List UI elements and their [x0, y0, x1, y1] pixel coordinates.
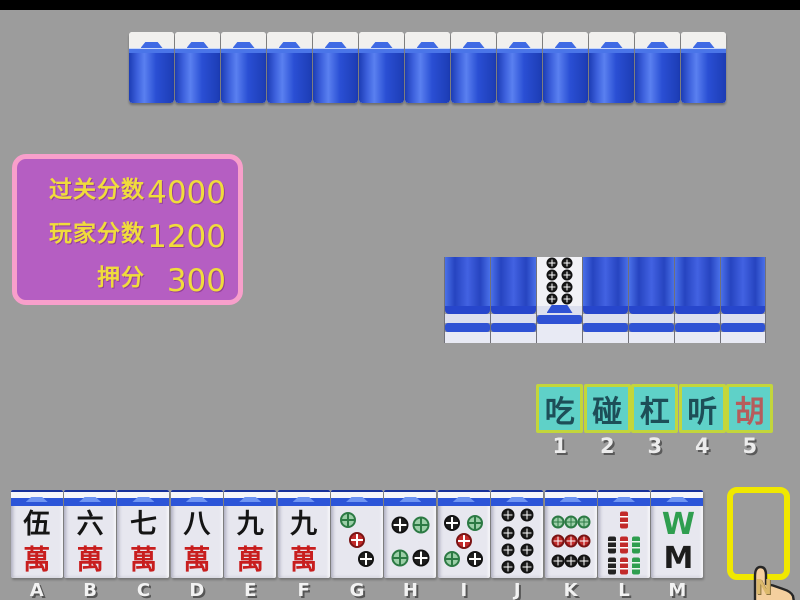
tile-back-body [497, 53, 542, 103]
action-cell-gang: 杠3 [631, 384, 679, 457]
tile-top-face [405, 32, 450, 48]
tile-stripe [537, 306, 582, 315]
circle-dot-black [392, 516, 409, 533]
action-button-bar: 吃1碰2杠3听4胡5 [536, 384, 774, 457]
circle-dot-black [501, 509, 514, 522]
meld-tile-back [628, 257, 674, 343]
hand-cell: I [437, 490, 490, 600]
opponent-tile-back [451, 32, 496, 103]
tile-cap [331, 490, 383, 506]
hand-tile-E[interactable]: 九萬 [224, 490, 276, 578]
hand-cell: 七萬C [117, 490, 170, 600]
tile-side-body [445, 257, 490, 306]
circle-dot-green [392, 549, 409, 566]
opponent-tile-back [359, 32, 404, 103]
circle-dot-black [412, 549, 429, 566]
opponent-tile-back [313, 32, 358, 103]
tile-stripe [583, 323, 628, 332]
circle-dot-black [501, 543, 514, 556]
tile-back-body [543, 53, 588, 103]
action-cell-hu: 胡5 [726, 384, 774, 457]
tile-stripe [721, 306, 765, 314]
action-button-gang[interactable]: 杠 [631, 384, 678, 433]
tile-face [438, 506, 490, 578]
tile-stripe [583, 306, 628, 314]
tile-top-face [221, 32, 266, 48]
player-score-label: 玩家分数 [17, 211, 145, 248]
score-row-player-score: 玩家分数 1200 [17, 211, 238, 255]
tile-stripe [445, 306, 490, 314]
hand-cell: 伍萬A [10, 490, 63, 600]
hand-tile-I[interactable] [438, 490, 490, 578]
tile-side-body [721, 257, 765, 306]
tile-side-body [583, 257, 628, 306]
hand-tile-letter: K [564, 582, 578, 600]
hand-tile-D[interactable]: 八萬 [171, 490, 223, 578]
player-hand-row: 伍萬A六萬B七萬C八萬D九萬E九萬FGHIJKLWMM [10, 490, 704, 600]
circle-dot-black [551, 554, 564, 567]
circle-dot-black [467, 551, 483, 567]
circle-dot-green [444, 551, 460, 567]
tile-back-body [267, 53, 312, 103]
tile-wan-char: 萬 [117, 547, 169, 574]
tile-stripe [583, 332, 628, 343]
player-score-value: 1200 [145, 211, 238, 253]
tile-back-body [681, 53, 726, 103]
tile-cap [651, 490, 703, 506]
tile-cap [384, 490, 436, 506]
tile-stripe [445, 332, 490, 343]
hand-cell: 六萬B [63, 490, 116, 600]
tile-stripe [445, 323, 490, 332]
tile-wan-char: 萬 [64, 547, 116, 574]
circle-dot-green [564, 515, 577, 528]
tile-cap [278, 490, 330, 506]
score-row-pass-score: 过关分数 4000 [17, 167, 238, 211]
tile-wan-char: 萬 [171, 547, 223, 574]
tile-face: 九萬 [278, 506, 330, 578]
circle-dot-black [520, 561, 533, 574]
tile-top-face [543, 32, 588, 48]
tile-back-body [405, 53, 450, 103]
hand-cursor-icon [744, 564, 800, 600]
opponent-tile-back [175, 32, 220, 103]
tile-back-body [313, 53, 358, 103]
tile-stripe [491, 332, 536, 343]
action-cell-peng: 碰2 [584, 384, 632, 457]
tile-stripe [675, 323, 720, 332]
tile-top-face [451, 32, 496, 48]
tile-cap [491, 490, 543, 506]
circle-dot-black [520, 509, 533, 522]
tile-stripe [629, 332, 674, 343]
tile-back-body [451, 53, 496, 103]
action-hotkey-gang: 3 [647, 436, 662, 457]
circle-dot-red [349, 532, 365, 548]
circle-dot-black [444, 515, 460, 531]
hand-tile-letter: L [618, 582, 629, 600]
opponent-tile-back [267, 32, 312, 103]
hand-tile-C[interactable]: 七萬 [117, 490, 169, 578]
tile-cap [545, 490, 597, 506]
action-button-chi[interactable]: 吃 [536, 384, 583, 433]
tile-number-char: 九 [224, 511, 276, 538]
tile-stripe [629, 323, 674, 332]
tile-stripe [675, 306, 720, 314]
hand-cell: H [384, 490, 437, 600]
tile-side-body [491, 257, 536, 306]
opponent-tile-back [681, 32, 726, 103]
opponent-tile-back [589, 32, 634, 103]
tile-stripe [629, 306, 674, 314]
hand-cell: G [330, 490, 383, 600]
meld-tile-back [582, 257, 628, 343]
tile-cap [64, 490, 116, 506]
hand-tile-letter: C [137, 582, 150, 600]
score-panel: 过关分数 4000 玩家分数 1200 押分 300 [12, 154, 243, 305]
opponent-tile-back [129, 32, 174, 103]
tile-top-face [129, 32, 174, 48]
action-hotkey-peng: 2 [600, 436, 615, 457]
tile-cap [117, 490, 169, 506]
pass-score-label: 过关分数 [17, 167, 145, 204]
opponent-hand-row [129, 32, 726, 103]
score-row-bet: 押分 300 [17, 255, 238, 299]
bamboo-stick-black [608, 558, 616, 575]
hand-tile-F[interactable]: 九萬 [278, 490, 330, 578]
meld-tile-back [490, 257, 536, 343]
hand-tile-L[interactable] [598, 490, 650, 578]
hand-tile-A[interactable]: 伍萬 [11, 490, 63, 578]
tile-side-body [629, 257, 674, 306]
circle-dot-green [467, 515, 483, 531]
bamboo-stick-green [632, 558, 640, 575]
tile-number-char: 九 [278, 511, 330, 538]
tile-cap [224, 490, 276, 506]
tile-back-body [221, 53, 266, 103]
tile-face [331, 506, 383, 578]
tile-face [598, 506, 650, 578]
tile-side-body [675, 257, 720, 306]
tile-back-body [359, 53, 404, 103]
top-black-bar [0, 0, 800, 10]
bamboo-eight-top-glyph: W [651, 510, 703, 540]
tile-stripe [537, 324, 582, 343]
tile-number-char: 六 [64, 511, 116, 538]
circle-dot-green [577, 515, 590, 528]
tile-face [491, 506, 543, 578]
hand-tile-letter: J [514, 582, 521, 600]
circle-dot-black [520, 543, 533, 556]
hand-cell: 九萬F [277, 490, 330, 600]
meld-tile-circle-8 [536, 257, 582, 343]
bet-label: 押分 [17, 255, 145, 292]
bamboo-stick-red [620, 558, 628, 575]
hand-tile-letter: M [668, 582, 686, 600]
circle-dot-black [546, 281, 557, 292]
draw-slot-letter: N [755, 577, 772, 597]
hand-cell: 九萬E [224, 490, 277, 600]
hand-cell: 八萬D [170, 490, 223, 600]
circle-dot-red [456, 533, 472, 549]
tile-cap [11, 490, 63, 506]
hand-tile-letter: F [298, 582, 310, 600]
tile-top-face [497, 32, 542, 48]
tile-face [537, 257, 582, 306]
hand-tile-K[interactable] [545, 490, 597, 578]
opponent-tile-back [635, 32, 680, 103]
hand-tile-letter: D [189, 582, 204, 600]
circle-dot-black [520, 526, 533, 539]
action-button-hu[interactable]: 胡 [726, 384, 773, 433]
tile-face: 伍萬 [11, 506, 63, 578]
tile-top-face [681, 32, 726, 48]
meld-tile-back [674, 257, 720, 343]
tile-back-body [129, 53, 174, 103]
hand-tile-letter: E [244, 582, 256, 600]
circle-dot-black [546, 293, 557, 304]
tile-face: WM [651, 506, 703, 578]
opponent-tile-back [405, 32, 450, 103]
tile-stripe [445, 314, 490, 323]
tile-number-char: 七 [117, 511, 169, 538]
bamboo-stick-red [620, 512, 628, 529]
tile-stripe [583, 314, 628, 323]
hand-cell: J [491, 490, 544, 600]
meld-tile-back [720, 257, 766, 343]
circle-dot-green [551, 515, 564, 528]
circle-dot-black [562, 293, 573, 304]
action-cell-chi: 吃1 [536, 384, 584, 457]
mahjong-game-screen: 过关分数 4000 玩家分数 1200 押分 300 吃1碰2杠3听4胡5 伍萬… [0, 0, 800, 600]
tile-stripe [629, 314, 674, 323]
tile-back-body [175, 53, 220, 103]
hand-tile-letter: H [403, 582, 418, 600]
circle-dot-black [546, 270, 557, 281]
bamboo-stick-green [632, 536, 640, 553]
tile-stripe [491, 314, 536, 323]
tile-stripe [675, 332, 720, 343]
hand-tile-letter: I [460, 582, 467, 600]
tile-stripe [721, 314, 765, 323]
circle-dot-black [562, 270, 573, 281]
tile-back-body [635, 53, 680, 103]
bamboo-eight-bottom-glyph: M [651, 544, 703, 574]
hand-tile-letter: B [83, 582, 97, 600]
tile-top-face [635, 32, 680, 48]
tile-face [384, 506, 436, 578]
tile-face: 九萬 [224, 506, 276, 578]
tile-stripe [491, 323, 536, 332]
tile-cap [598, 490, 650, 506]
bet-value: 300 [145, 255, 238, 297]
circle-dot-red [577, 535, 590, 548]
opponent-tile-back [543, 32, 588, 103]
tile-top-face [313, 32, 358, 48]
bamboo-stick-red [620, 536, 628, 553]
circle-dot-black [546, 258, 557, 269]
action-hotkey-hu: 5 [742, 436, 757, 457]
hand-tile-letter: A [30, 582, 44, 600]
tile-wan-char: 萬 [11, 547, 63, 574]
action-hotkey-ting: 4 [695, 436, 710, 457]
circle-dot-black [564, 554, 577, 567]
hand-cell: WMM [651, 490, 704, 600]
hand-tile-M[interactable]: WM [651, 490, 703, 578]
tile-top-face [589, 32, 634, 48]
circle-dot-black [562, 281, 573, 292]
hand-tile-G[interactable] [331, 490, 383, 578]
circle-dot-black [501, 526, 514, 539]
hand-tile-H[interactable] [384, 490, 436, 578]
tile-stripe [721, 332, 765, 343]
bamboo-stick-black [608, 536, 616, 553]
hand-cell: L [597, 490, 650, 600]
opponent-tile-back [221, 32, 266, 103]
action-button-ting[interactable]: 听 [679, 384, 726, 433]
tile-top-face [267, 32, 312, 48]
tile-cap [438, 490, 490, 506]
circle-dot-black [358, 551, 374, 567]
tile-face: 七萬 [117, 506, 169, 578]
action-button-peng[interactable]: 碰 [584, 384, 631, 433]
circle-dot-green [340, 512, 356, 528]
tile-number-char: 八 [171, 511, 223, 538]
tile-face [545, 506, 597, 578]
tile-stripe [721, 323, 765, 332]
tile-cap [171, 490, 223, 506]
hand-tile-B[interactable]: 六萬 [64, 490, 116, 578]
opponent-tile-back [497, 32, 542, 103]
tile-wan-char: 萬 [224, 547, 276, 574]
tile-top-face [359, 32, 404, 48]
circle-dot-black [577, 554, 590, 567]
tile-top-face [175, 32, 220, 48]
tile-stripe [675, 314, 720, 323]
tile-wan-char: 萬 [278, 547, 330, 574]
circle-dot-black [501, 561, 514, 574]
tile-face: 六萬 [64, 506, 116, 578]
circle-dot-green [412, 516, 429, 533]
circle-dot-red [564, 535, 577, 548]
hand-tile-J[interactable] [491, 490, 543, 578]
circle-dot-black [562, 258, 573, 269]
tile-stripe [537, 315, 582, 324]
circle-dot-red [551, 535, 564, 548]
hand-tile-letter: G [350, 582, 365, 600]
meld-tile-back [444, 257, 490, 343]
tile-back-body [589, 53, 634, 103]
discard-meld-row [444, 257, 766, 343]
action-cell-ting: 听4 [679, 384, 727, 457]
pass-score-value: 4000 [145, 167, 238, 209]
tile-stripe [491, 306, 536, 314]
hand-cell: K [544, 490, 597, 600]
tile-number-char: 伍 [11, 511, 63, 538]
action-hotkey-chi: 1 [552, 436, 567, 457]
tile-face: 八萬 [171, 506, 223, 578]
